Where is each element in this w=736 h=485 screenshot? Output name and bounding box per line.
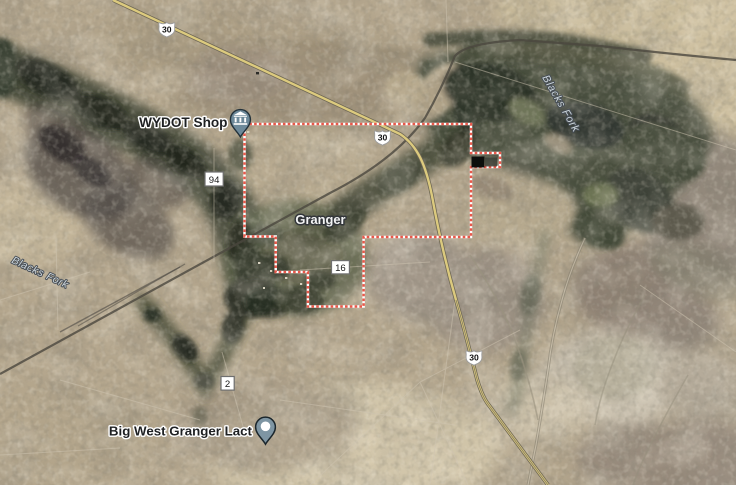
svg-text:30: 30 (162, 24, 172, 34)
svg-text:Granger: Granger (295, 212, 345, 227)
svg-text:2: 2 (225, 379, 230, 390)
svg-text:30: 30 (378, 133, 388, 143)
svg-text:30: 30 (469, 353, 479, 363)
svg-text:WYDOT Shop: WYDOT Shop (139, 115, 227, 130)
svg-text:94: 94 (209, 175, 220, 186)
svg-text:Big West Granger Lact: Big West Granger Lact (109, 424, 253, 439)
svg-text:16: 16 (335, 263, 346, 274)
